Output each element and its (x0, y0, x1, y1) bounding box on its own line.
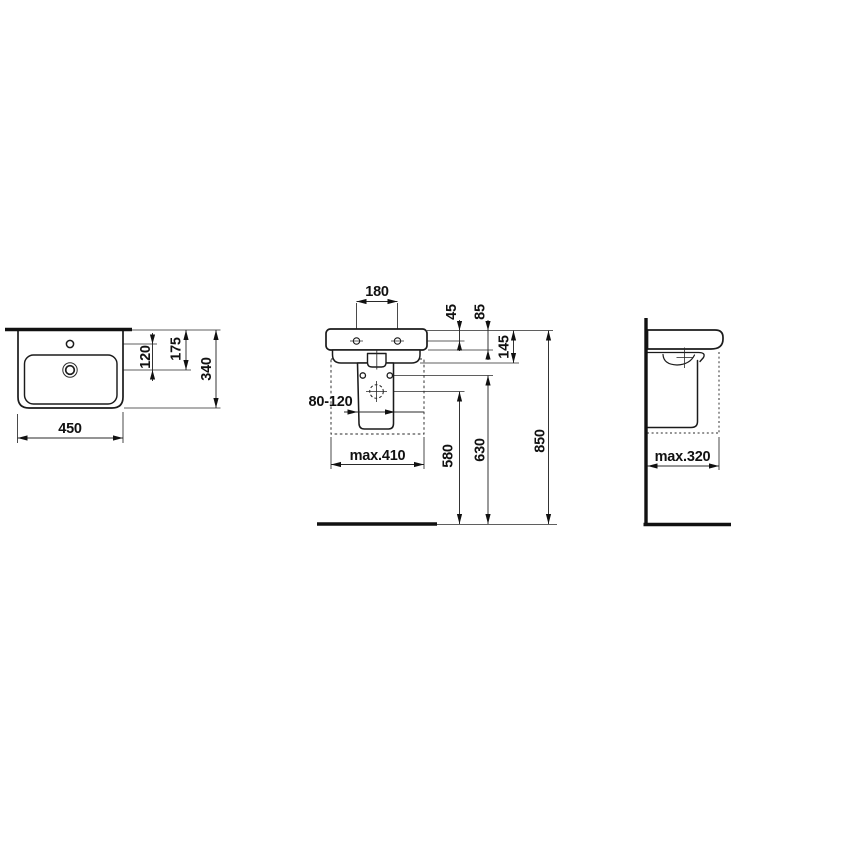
arrow-85-top (485, 321, 490, 331)
dim-630-label: 630 (473, 438, 489, 462)
dim-175-label: 175 (169, 337, 185, 361)
siphon-cover-side (647, 361, 698, 428)
dim-145-label: 145 (497, 335, 513, 359)
arrow-max410-left (331, 462, 341, 467)
arrow-45-bottom (457, 341, 462, 351)
arrow-120-bottom (150, 370, 155, 380)
dim-180-label: 180 (365, 284, 389, 300)
arrow-580-bottom (457, 514, 462, 524)
dim-80-120-label: 80-120 (309, 394, 353, 410)
arrow-max320-right (709, 463, 719, 468)
dim-850-label: 850 (533, 429, 549, 453)
tap-hole-plan (66, 340, 73, 347)
bowl-underside-curve (663, 355, 695, 366)
pedestal-hole-left (360, 373, 365, 378)
apron-profile-side (648, 353, 705, 362)
arrow-180-right (388, 299, 398, 304)
arrow-45-top (457, 321, 462, 331)
dim-120-label: 120 (138, 345, 154, 369)
arrow-850-top (546, 331, 551, 341)
arrow-450-left (18, 435, 28, 440)
dim-340-label: 340 (199, 357, 215, 381)
arrow-80-120-left (348, 409, 358, 414)
arrow-630-top (485, 376, 490, 386)
arrow-450-right (113, 435, 123, 440)
dim-450-label: 450 (58, 421, 82, 437)
arrow-85-bottom (485, 350, 490, 360)
dim-45-label: 45 (444, 304, 460, 320)
side-view: max.320 (644, 318, 732, 526)
dim-85-label: 85 (473, 304, 489, 320)
arrow-340-top (213, 330, 218, 340)
arrow-850-bottom (546, 514, 551, 524)
arrow-580-top (457, 392, 462, 402)
technical-drawing-page: 450 120 175 340 (0, 0, 868, 868)
basin-profile-side (648, 330, 724, 349)
dim-max320-label: max.320 (655, 449, 711, 465)
dim-580-label: 580 (441, 444, 457, 468)
washbasin-technical-drawing: 450 120 175 340 (0, 0, 868, 868)
basin-slab-front (326, 329, 427, 350)
dim-max410-label: max.410 (350, 448, 406, 464)
arrow-340-bottom (213, 398, 218, 408)
arrow-max410-right (414, 462, 424, 467)
front-view: 180 45 85 145 80-120 max.410 580 (309, 284, 557, 525)
plan-view: 450 120 175 340 (5, 330, 221, 444)
pedestal-hole-right (387, 373, 392, 378)
arrow-630-bottom (485, 514, 490, 524)
arrow-120-top (150, 335, 155, 345)
